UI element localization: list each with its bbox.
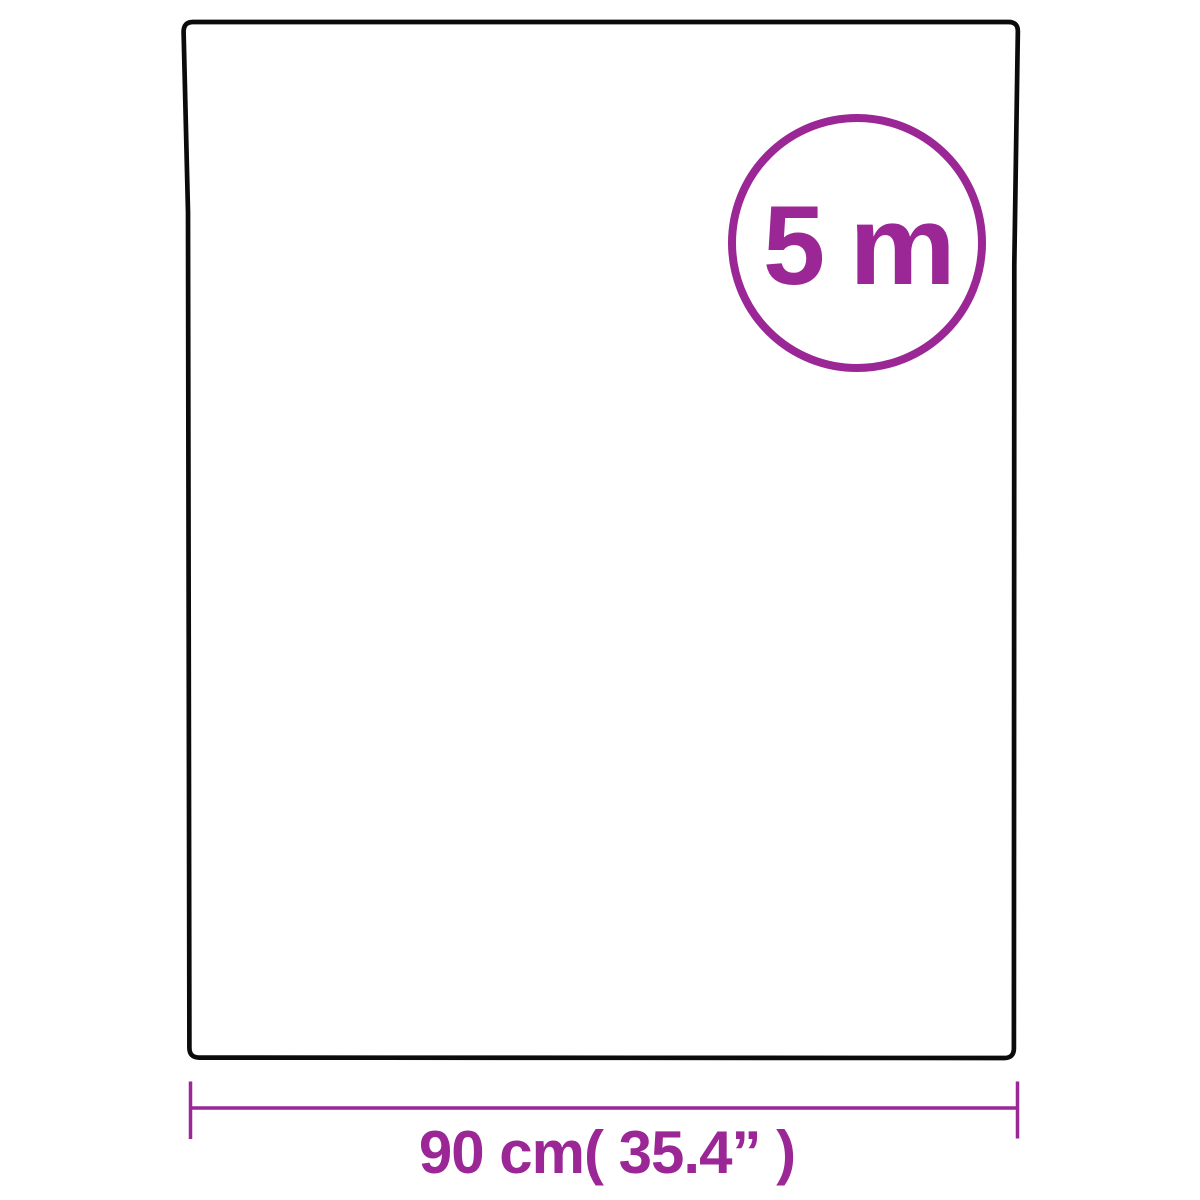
svg-text:5: 5 — [763, 183, 825, 308]
svg-text:m: m — [849, 183, 956, 308]
svg-text:90 cm( 35.4” ): 90 cm( 35.4” ) — [419, 1119, 795, 1186]
